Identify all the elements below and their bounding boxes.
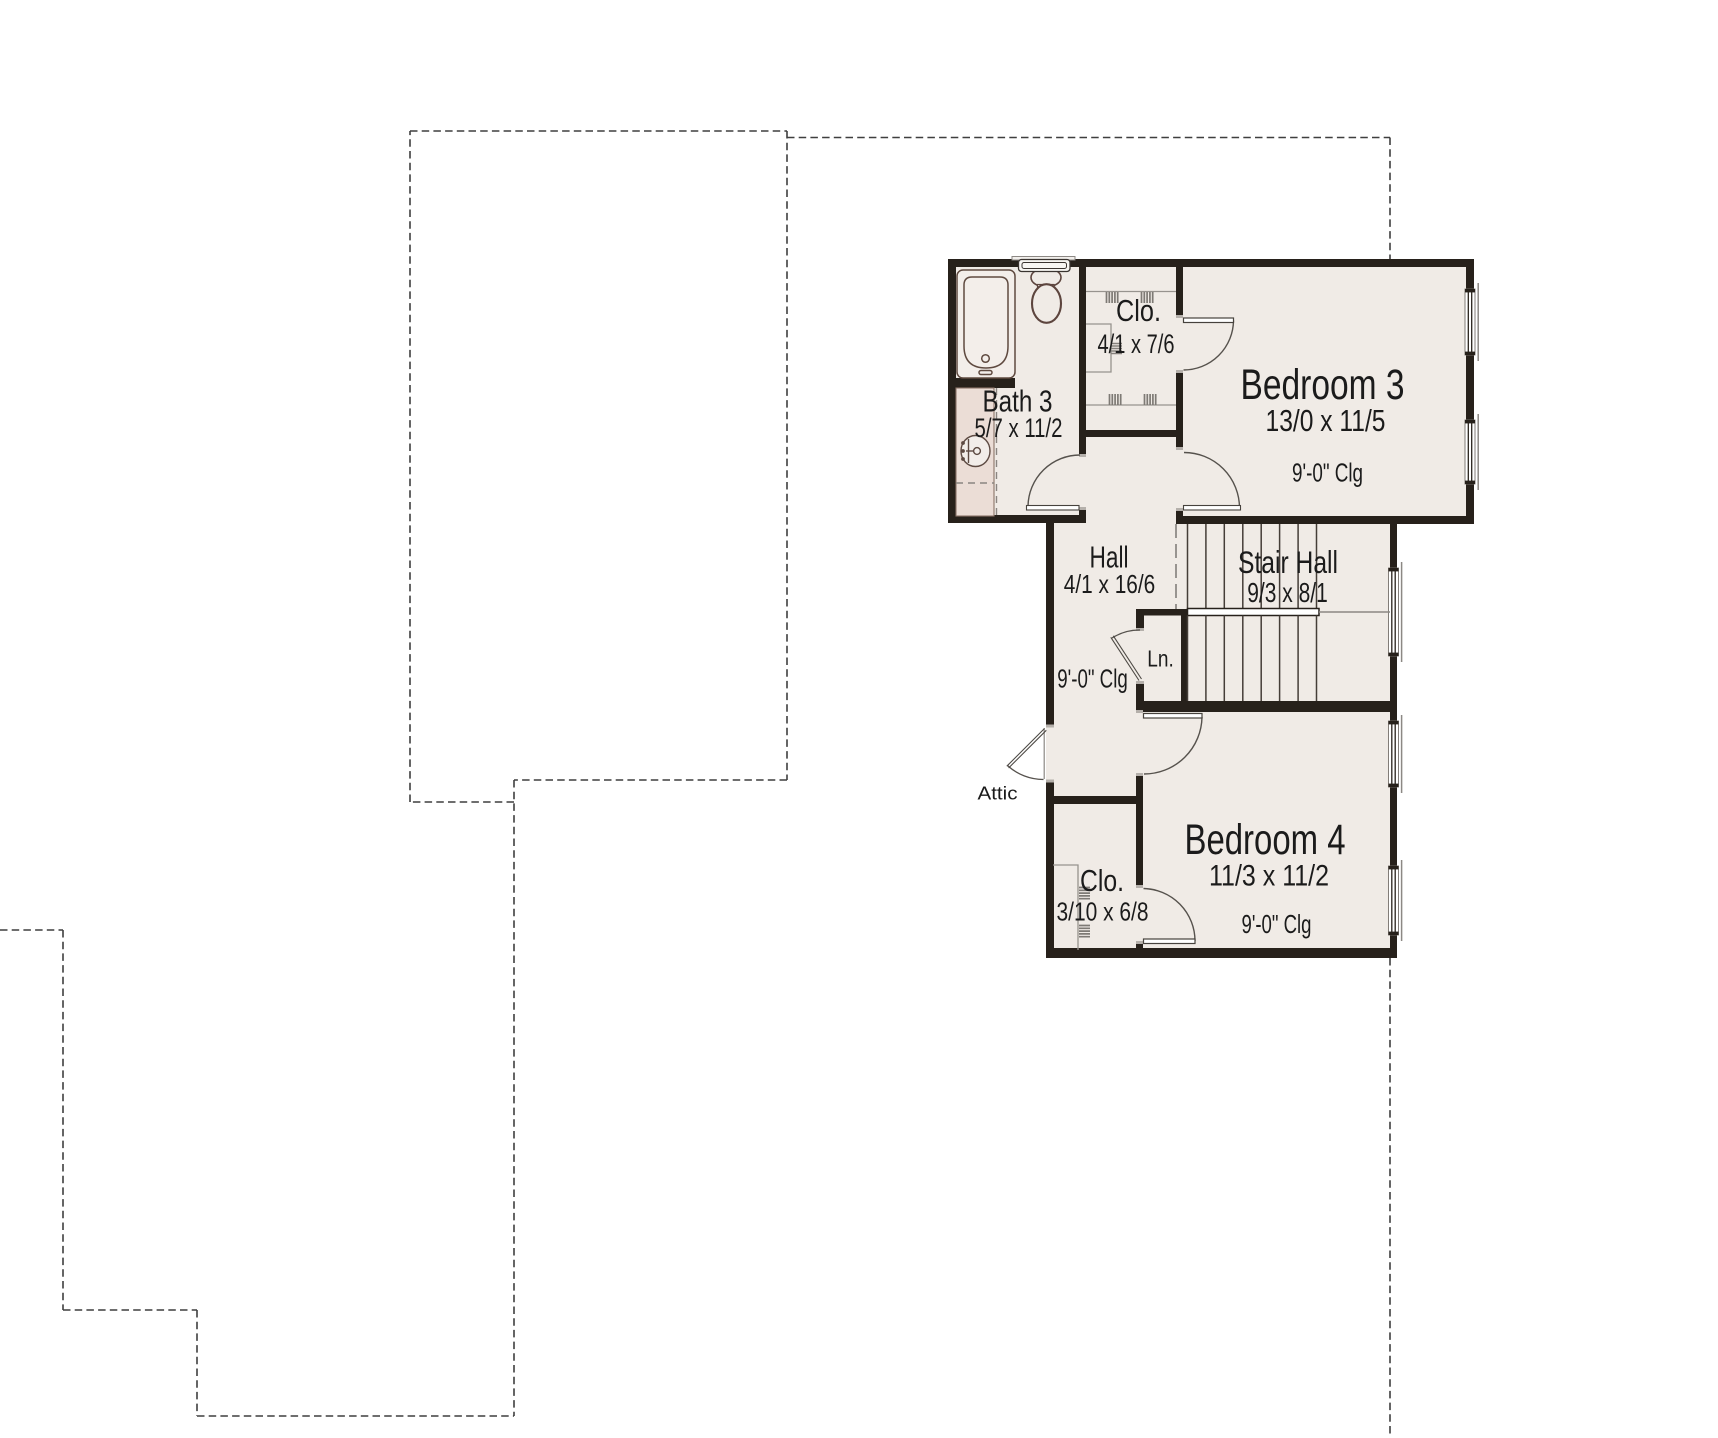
- svg-text:Bedroom 4: Bedroom 4: [1185, 816, 1346, 864]
- svg-text:Ln.: Ln.: [1147, 646, 1174, 672]
- svg-text:Stair Hall: Stair Hall: [1238, 544, 1338, 580]
- svg-text:13/0 x 11/5: 13/0 x 11/5: [1266, 404, 1386, 438]
- svg-text:9'-0" Clg: 9'-0" Clg: [1292, 458, 1363, 488]
- svg-text:Bedroom 3: Bedroom 3: [1241, 361, 1405, 409]
- svg-text:9'-0" Clg: 9'-0" Clg: [1057, 666, 1128, 694]
- svg-text:Attic: Attic: [978, 783, 1018, 804]
- svg-text:4/1 x 7/6: 4/1 x 7/6: [1098, 329, 1175, 359]
- svg-text:11/3 x 11/2: 11/3 x 11/2: [1209, 860, 1329, 893]
- svg-text:Clo.: Clo.: [1116, 293, 1161, 328]
- svg-text:3/10 x 6/8: 3/10 x 6/8: [1057, 897, 1149, 927]
- svg-text:5/7 x 11/2: 5/7 x 11/2: [975, 413, 1063, 443]
- svg-text:Clo.: Clo.: [1080, 863, 1124, 898]
- svg-text:9/3 x 8/1: 9/3 x 8/1: [1247, 577, 1328, 608]
- svg-text:4/1 x 16/6: 4/1 x 16/6: [1064, 569, 1156, 599]
- svg-text:9'-0" Clg: 9'-0" Clg: [1242, 909, 1312, 939]
